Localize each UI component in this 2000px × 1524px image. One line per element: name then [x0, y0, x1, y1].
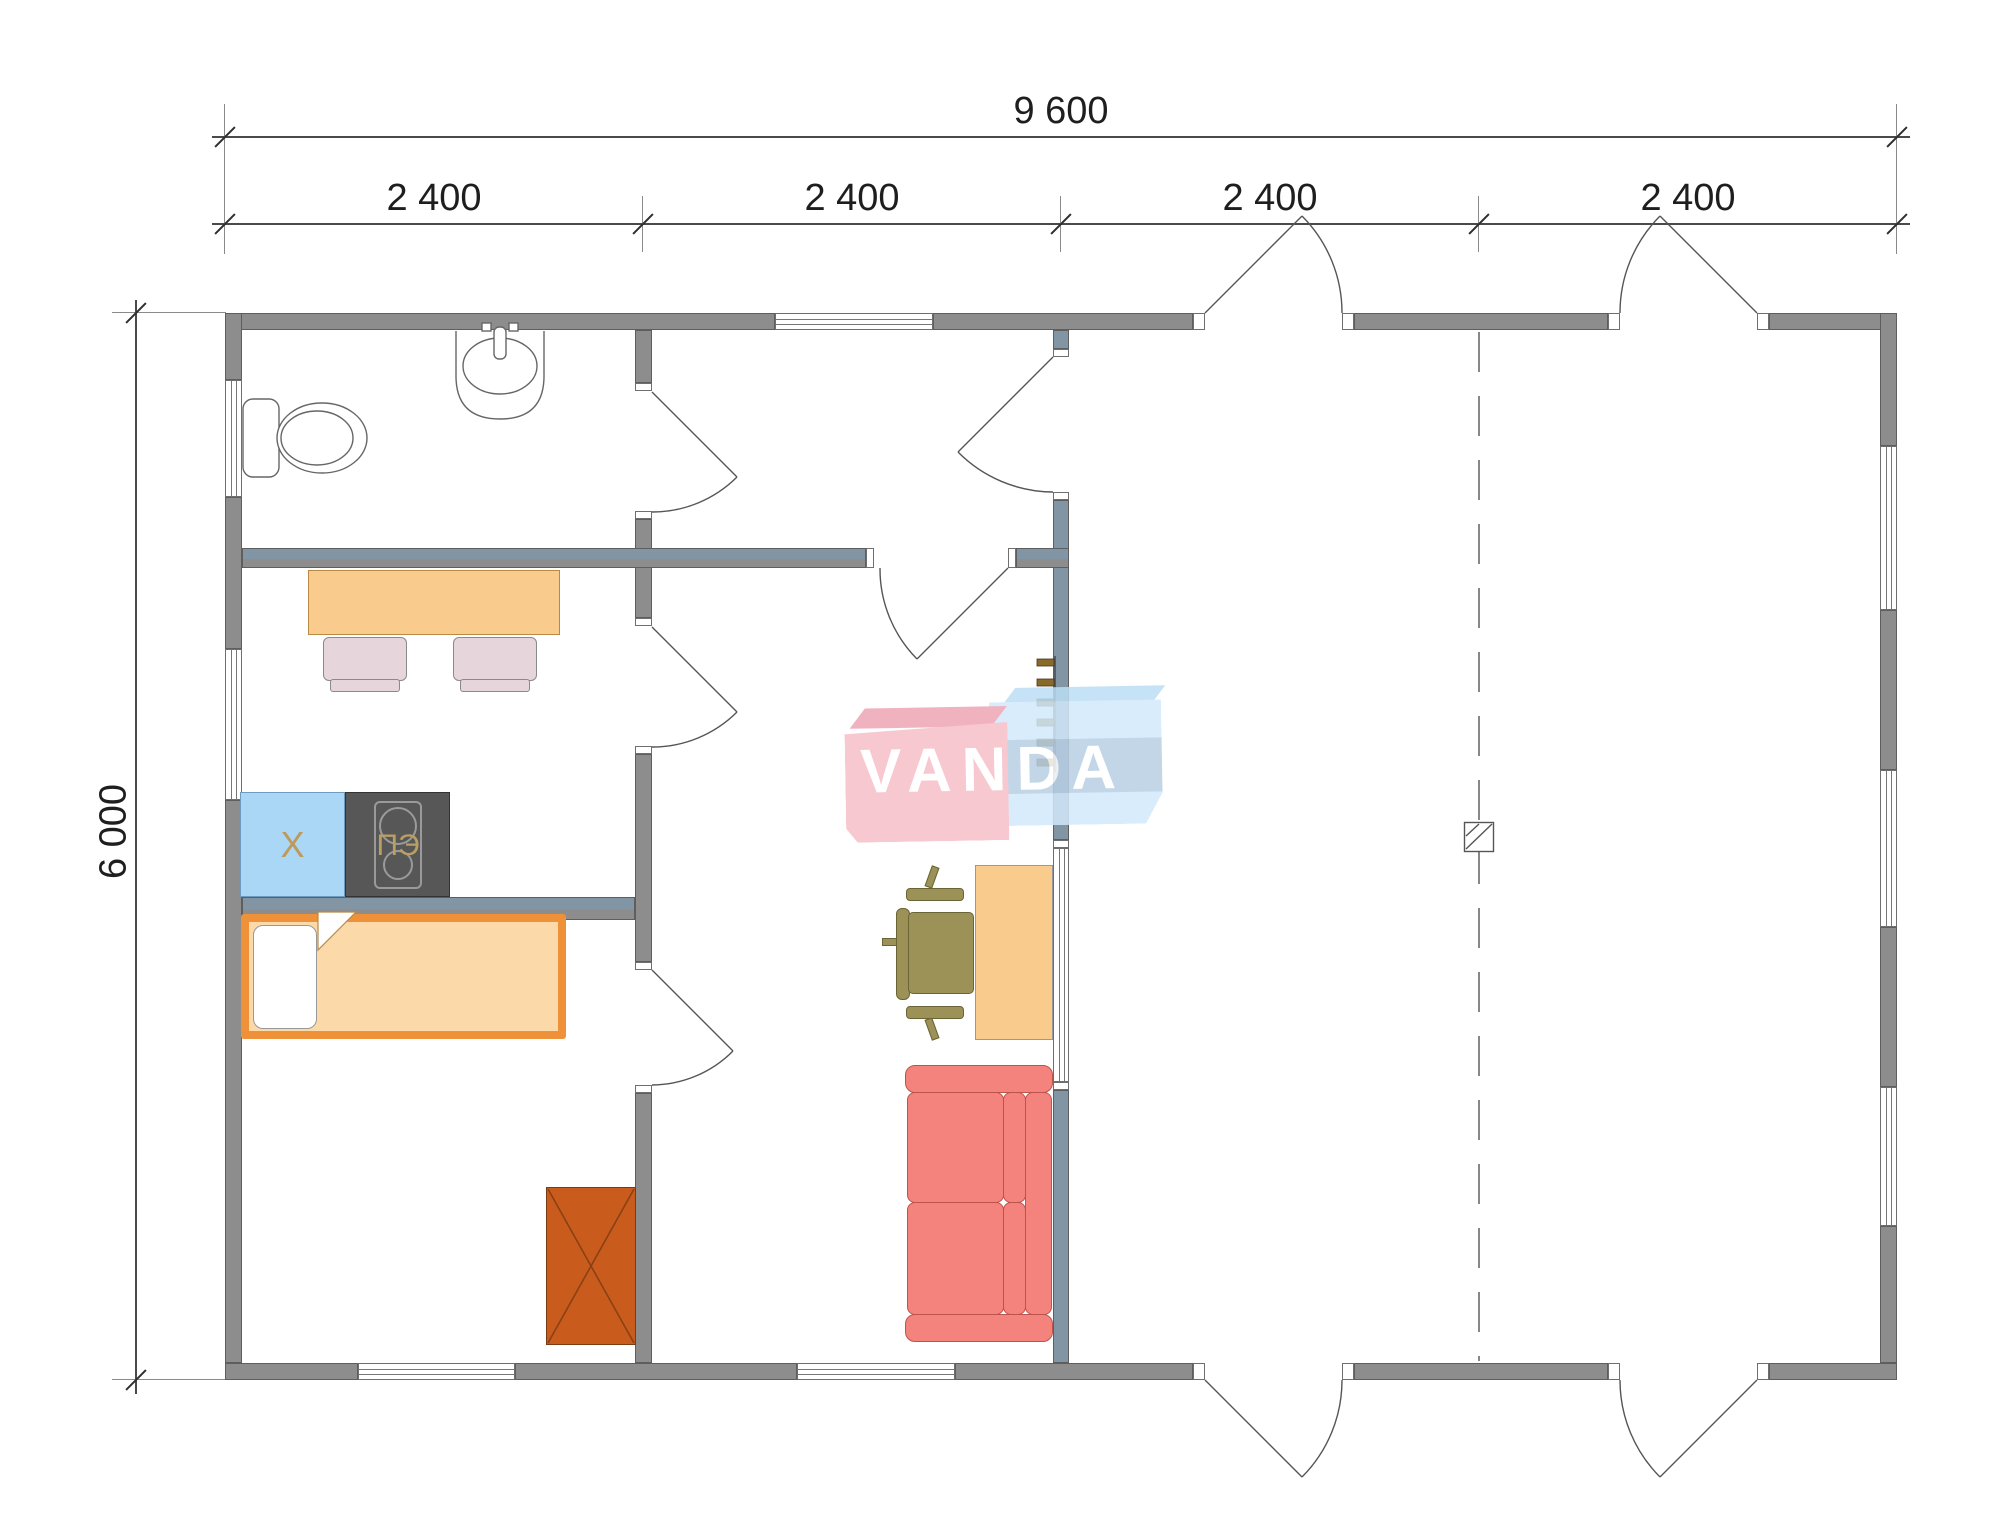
door-middle-room: [880, 568, 1008, 659]
door-kitchen: [652, 627, 737, 747]
floor-plan: 9 600 2 400 2 400 2 400 2 400 6 000: [0, 0, 2000, 1524]
sink: [456, 323, 544, 419]
door-hall-to-big-room: [958, 357, 1053, 492]
door-bedroom: [652, 970, 733, 1085]
door-exterior-top-right: [1620, 216, 1757, 313]
door-exterior-top-left: [1205, 216, 1342, 313]
column-post: [1465, 823, 1494, 852]
door-bathroom: [652, 392, 737, 512]
door-exterior-bottom-left: [1205, 1380, 1342, 1477]
door-exterior-bottom-right: [1620, 1380, 1757, 1477]
wardrobe-cross: [548, 1189, 634, 1343]
logo-text: VANDA: [860, 736, 1127, 805]
blanket-fold: [318, 912, 356, 950]
toilet: [243, 399, 367, 477]
door-swings: [652, 216, 1757, 1477]
vanda-watermark: VANDA: [839, 679, 1182, 845]
